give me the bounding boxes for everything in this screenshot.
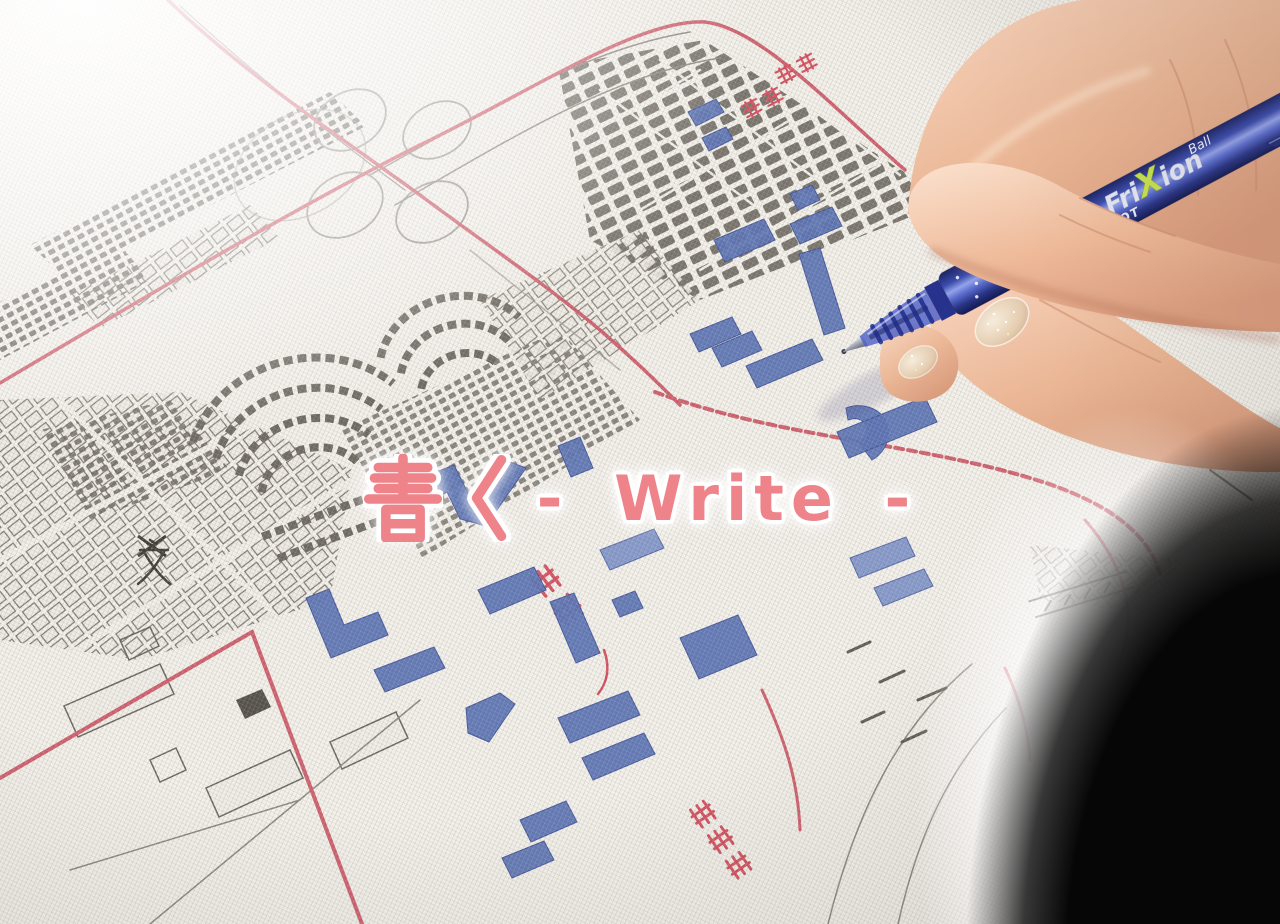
photo-stage: PILOT Ball FriXion xyxy=(0,0,1280,924)
frixion-wordmark: FriXion xyxy=(1096,138,1209,223)
pen-grip-dots xyxy=(953,227,1056,303)
hand xyxy=(880,0,1280,472)
map-label-station-top-1 xyxy=(775,52,818,85)
pen-clip xyxy=(1265,101,1280,150)
ring-finger-nail xyxy=(893,339,943,385)
map-label-station-bottom xyxy=(688,800,753,880)
ring-finger-tip xyxy=(880,324,958,402)
map-label-yokohama xyxy=(529,564,585,626)
frixion-pen: PILOT Ball FriXion xyxy=(829,66,1280,373)
nail-glitter xyxy=(987,311,1015,335)
pen-barrel xyxy=(936,68,1280,317)
map-label-bracket xyxy=(598,650,607,694)
frixion-ball-label: Ball xyxy=(1186,133,1215,158)
pilot-logo: PILOT xyxy=(1082,204,1143,245)
nail-glitter xyxy=(911,355,923,371)
kanji-kaku xyxy=(363,454,443,542)
map-streets xyxy=(0,40,900,660)
pen-grip-ribs xyxy=(870,295,933,347)
pen-grip-cone xyxy=(854,289,941,357)
pen-collar xyxy=(924,280,956,321)
pilot-wordmark: PILOT xyxy=(1095,204,1143,238)
caption-latin-text: - Write - xyxy=(537,462,917,535)
caption-overlay: - Write - xyxy=(0,438,1280,558)
pen-ball-point xyxy=(841,348,848,355)
kanji-ku xyxy=(463,454,517,542)
index-finger xyxy=(908,163,1280,340)
pen-ink-window xyxy=(868,305,929,340)
map-label-station-top-2 xyxy=(741,86,784,119)
thumb-and-palm xyxy=(908,0,1280,270)
middle-finger-nail xyxy=(966,288,1038,356)
pen-shadow xyxy=(811,338,950,432)
pilot-logo-icon xyxy=(1082,228,1097,243)
map-interchange xyxy=(214,77,620,370)
pen-metal-tip xyxy=(839,335,868,358)
map-outlined-buildings xyxy=(64,627,420,924)
